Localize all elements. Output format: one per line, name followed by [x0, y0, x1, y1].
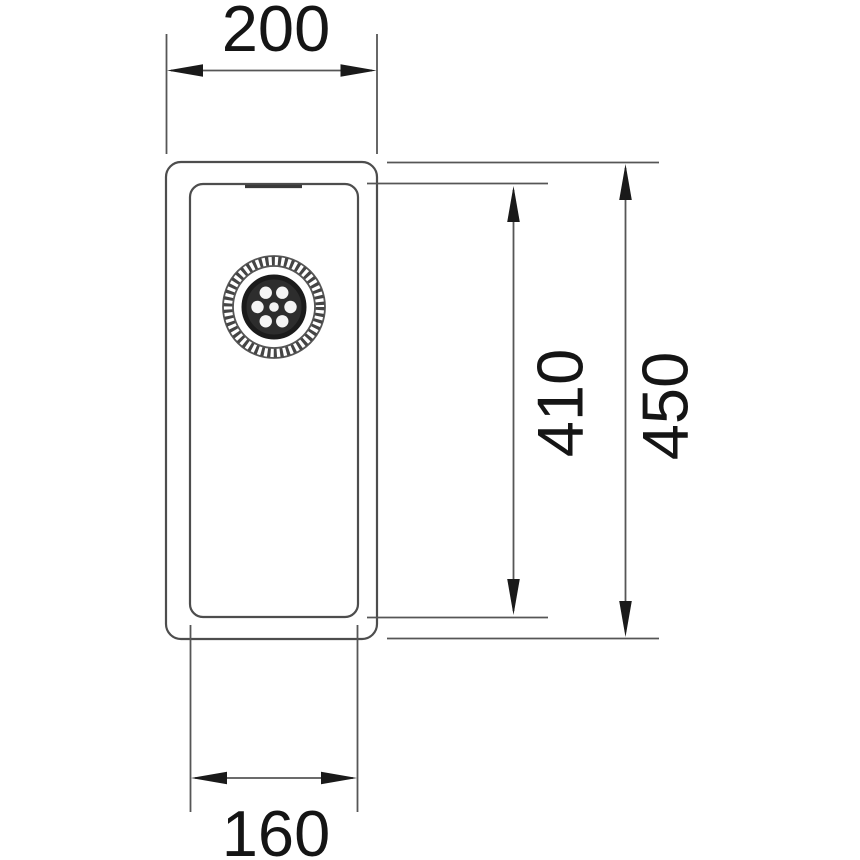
- strainer-hole: [276, 315, 288, 327]
- sink-outline: [166, 162, 377, 639]
- arrow-down-icon: [507, 579, 520, 615]
- strainer-hole: [260, 315, 272, 327]
- strainer-hole: [276, 287, 288, 299]
- dimension-label-outer-depth: 450: [629, 352, 702, 460]
- arrow-left-icon: [191, 772, 227, 785]
- sink-bowl-edge: [190, 184, 358, 617]
- dimension-label-outer-width: 200: [222, 0, 330, 65]
- arrow-up-icon: [619, 164, 632, 200]
- technical-drawing-canvas: 200 410 450 160: [0, 0, 860, 860]
- strainer-hole: [260, 287, 272, 299]
- arrow-right-icon: [321, 772, 357, 785]
- drain-strainer-icon: [223, 256, 325, 358]
- dimension-label-bowl-depth: 410: [524, 349, 597, 457]
- strainer-hole: [251, 301, 263, 313]
- dimension-bowl-width: 160: [191, 625, 358, 860]
- sink-outer-edge: [166, 162, 377, 639]
- dimension-label-bowl-width: 160: [222, 797, 330, 860]
- strainer-hole: [284, 301, 296, 313]
- dimension-bowl-depth: 410: [367, 184, 597, 618]
- sink-dimension-drawing: 200 410 450 160: [0, 0, 860, 860]
- arrow-left-icon: [167, 64, 203, 77]
- arrow-down-icon: [619, 601, 632, 637]
- arrow-right-icon: [341, 64, 377, 77]
- arrow-up-icon: [507, 186, 520, 222]
- strainer-hub: [269, 302, 279, 312]
- dimension-outer-width: 200: [167, 0, 378, 154]
